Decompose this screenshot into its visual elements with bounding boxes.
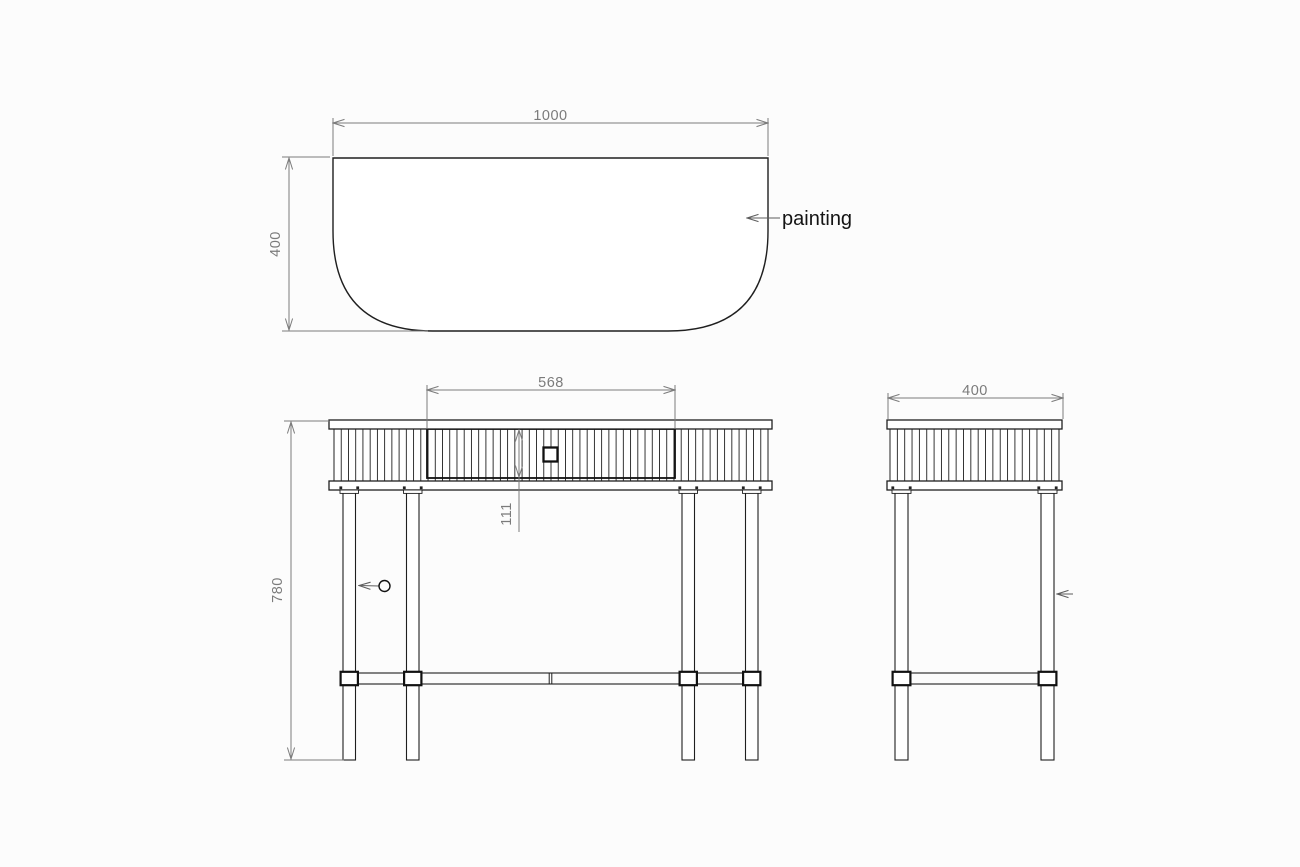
- mount-screw-mark: [1055, 486, 1058, 489]
- leg: [682, 490, 695, 760]
- mount-screw-mark: [420, 486, 423, 489]
- dimension-label-total-height: 780: [270, 577, 286, 603]
- dimension-label-drawer-height: 111: [499, 502, 515, 526]
- leg-mount-pad: [1038, 490, 1057, 493]
- leg-mount-pad: [892, 490, 911, 493]
- painting-label: painting: [782, 208, 852, 230]
- mount-screw-mark: [759, 486, 762, 489]
- callout-balloon: [379, 581, 390, 592]
- stretcher-joint: [1039, 672, 1057, 685]
- apron-bottom-band: [329, 481, 772, 490]
- tabletop-edge: [887, 420, 1062, 429]
- leader-line: [359, 586, 379, 587]
- dimension-label-top-depth: 400: [268, 231, 284, 257]
- dimension-label-drawer-width: 568: [538, 375, 564, 391]
- top-view: 1000 400 painting: [268, 108, 852, 331]
- mount-screw-mark: [891, 486, 894, 489]
- drawer-knob: [544, 448, 558, 462]
- stretcher-joint: [341, 672, 358, 685]
- stretcher-joint: [743, 672, 760, 685]
- tabletop-outline: [333, 158, 768, 331]
- stretcher-joint: [893, 672, 911, 685]
- mount-screw-mark: [742, 486, 745, 489]
- drawing-sheet: 1000 400 painting: [0, 0, 1300, 867]
- leg: [895, 490, 908, 760]
- stretcher-joint: [404, 672, 421, 685]
- dim-top-width: 1000: [333, 108, 768, 156]
- front-view: 568 111 780: [270, 375, 772, 760]
- mount-screw-mark: [678, 486, 681, 489]
- stretcher-bar: [896, 673, 1054, 684]
- stretcher-joints: [341, 672, 761, 685]
- leg: [746, 490, 759, 760]
- tabletop-edge: [329, 420, 772, 429]
- legs: [891, 486, 1057, 760]
- legs: [339, 486, 761, 760]
- mount-screw-mark: [356, 486, 359, 489]
- stretcher-joint: [680, 672, 697, 685]
- leg: [1041, 490, 1054, 760]
- leg-mount-pad: [743, 490, 762, 493]
- apron-panel: [890, 429, 1059, 481]
- side-view: 400: [887, 383, 1073, 760]
- leg-mount-pad: [679, 490, 698, 493]
- leg: [407, 490, 420, 760]
- mount-screw-mark: [339, 486, 342, 489]
- mount-screw-mark: [1037, 486, 1040, 489]
- leg: [343, 490, 356, 760]
- leg-mount-pad: [340, 490, 359, 493]
- mount-screw-mark: [403, 486, 406, 489]
- leg-callout: [359, 581, 390, 592]
- stretcher-joints: [893, 672, 1057, 685]
- dim-total-height: 780: [270, 421, 344, 760]
- mount-screw-mark: [909, 486, 912, 489]
- apron-bottom-band: [887, 481, 1062, 490]
- mount-screw-mark: [695, 486, 698, 489]
- leg-mount-pad: [404, 490, 423, 493]
- technical-drawing: 1000 400 painting: [0, 0, 1300, 867]
- dimension-label-side-depth: 400: [962, 383, 988, 399]
- dim-side-depth: 400: [888, 383, 1063, 419]
- dimension-label-top-width: 1000: [533, 108, 567, 124]
